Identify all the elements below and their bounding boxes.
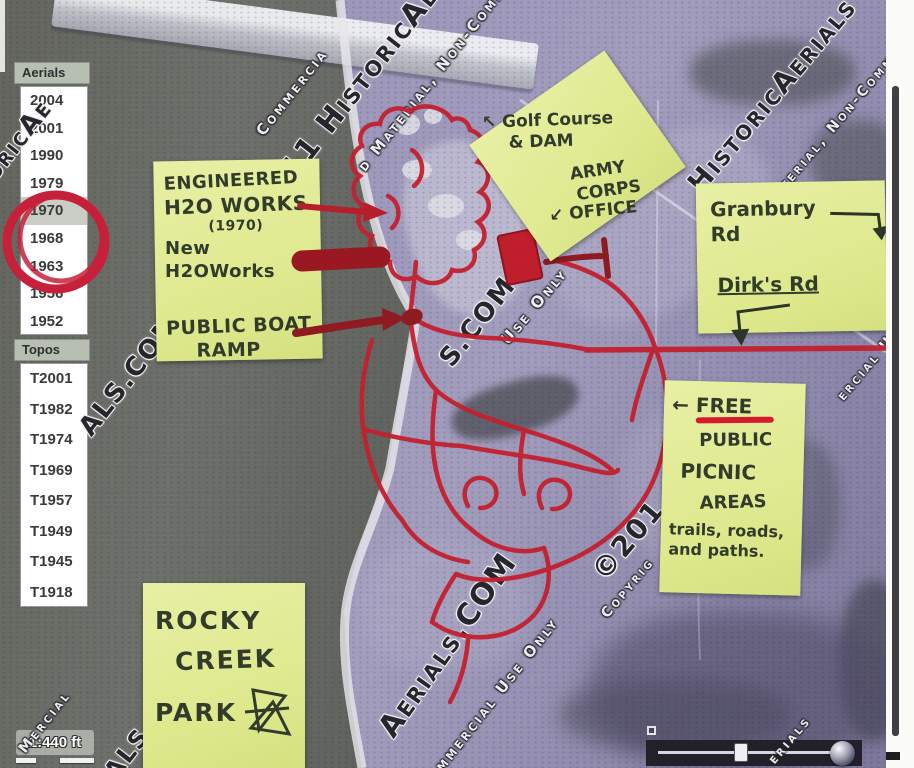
right-down-elbow-arrow-icon [828,204,886,243]
topo-year-item[interactable]: T1918 [21,578,87,609]
aerial-year-item[interactable]: 1956 [21,280,87,308]
topo-year-item[interactable]: T1969 [21,456,87,487]
handwriting-line: ROCKY [155,605,305,636]
handwriting-line: Granbury Rd [710,195,838,247]
fullscreen-icon[interactable] [647,726,656,735]
aerial-year-item[interactable]: 1990 [21,142,87,170]
handwriting-line: PARK [155,686,305,740]
sticky-note-rocky-creek-park: ROCKY CREEK PARK [143,583,305,768]
handwriting-line: PICNIC [680,458,804,486]
scale-bar [60,758,94,763]
triangle-scribble-icon [243,686,293,740]
globe-icon[interactable] [830,741,855,766]
tree-cluster [445,365,584,451]
sticky-note-roads: Granbury Rd Dirk's Rd [696,180,888,333]
topo-year-item[interactable]: T1974 [21,425,87,456]
down-elbow-arrow-icon [726,299,799,348]
sticky-note-waterworks: ENGINEERED H2O WORKS (1970) New H2OWorks… [153,159,322,362]
handwriting-text: PARK [155,697,237,728]
sticky-note-picnic: ← FREE PUBLIC PICNIC AREAS trails, roads… [659,380,806,596]
handwriting-line: RAMP [196,337,316,363]
topo-year-item[interactable]: T1945 [21,547,87,578]
pond [424,108,442,124]
field-patch [360,540,530,670]
handwriting-line: Dirk's Rd [717,270,886,298]
handwriting-line: AREAS [699,490,803,515]
handwriting-line: CREEK [174,642,305,678]
pond [456,230,484,250]
paper-edge-tick [886,752,900,760]
scanned-page: Aerials 2004 2001 1990 1979 1970 1968 19… [0,0,914,768]
zoom-slider-track[interactable] [658,751,848,754]
pond [428,194,464,218]
topo-year-item[interactable]: T1982 [21,395,87,426]
topos-year-list: T2001 T1982 T1974 T1969 T1957 T1949 T194… [20,363,88,607]
pond [402,160,432,180]
aerial-year-item-selected[interactable]: 1970 [21,197,87,225]
aerial-year-item[interactable]: 1963 [21,253,87,281]
aerials-list-header[interactable]: Aerials [14,62,90,84]
handwriting-line: New H2OWorks [165,238,315,283]
topos-list-header[interactable]: Topos [14,339,90,361]
aerials-year-list: 2004 2001 1990 1979 1970 1968 1963 1956 … [20,86,88,335]
handwriting-line: H2O WORKS [164,190,315,220]
zoom-slider-bar [646,740,862,766]
handwriting-line: (1970) [208,216,314,235]
handwriting-line: and paths. [668,539,801,562]
paper-edge-line [892,86,899,736]
aerial-year-item[interactable]: 2001 [21,115,87,143]
aerial-year-item[interactable]: 2004 [21,87,87,115]
handwriting-line: PUBLIC [699,429,804,452]
zoom-slider-thumb[interactable] [734,743,748,762]
topo-year-item[interactable]: T2001 [21,364,87,395]
tree-cluster [690,40,855,105]
aerial-year-item[interactable]: 1968 [21,225,87,253]
aerial-year-item[interactable]: 1979 [21,170,87,198]
scale-bar [16,758,36,763]
topo-year-item[interactable]: T1957 [21,486,87,517]
aerial-year-item[interactable]: 1952 [21,308,87,336]
dam-spillway [51,0,539,90]
red-underline [696,417,774,424]
pond [394,113,420,135]
scan-edge [0,0,5,72]
paper-margin [886,0,914,768]
map-scale-label: 1:440 ft [16,730,94,755]
topo-year-item[interactable]: T1949 [21,517,87,548]
